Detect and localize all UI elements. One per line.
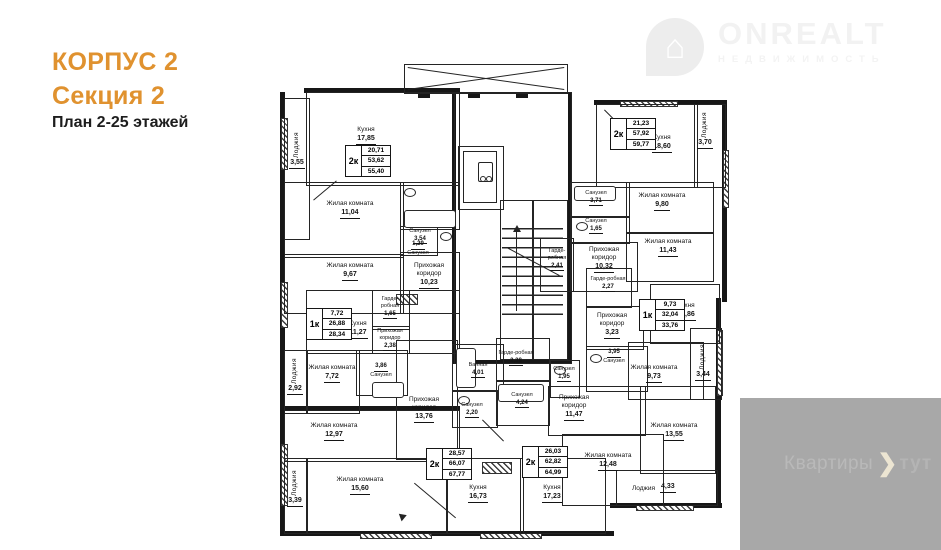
room-label: Жилая комната15,60 xyxy=(330,476,390,495)
room-label: Прихожая коридор10,23 xyxy=(404,262,454,289)
room-label: 3,86Санузел xyxy=(358,362,404,378)
building-title: КОРПУС 2 xyxy=(52,48,178,77)
area-living-total: 9,73 xyxy=(656,300,684,310)
room-label: Лоджия2,92 xyxy=(286,358,304,395)
room-label: Жилая комната9,73 xyxy=(626,364,682,383)
apartment-info-box: 1к 7,7226,8828,34 xyxy=(306,308,352,340)
apartment-type: 1к xyxy=(307,309,323,339)
room-label: Прихожая коридор11,47 xyxy=(550,394,598,421)
room-label: Кухня17,85 xyxy=(340,126,392,145)
area-total: 64,99 xyxy=(539,468,567,477)
brand-tagline: НЕДВИЖИМОСТЬ xyxy=(718,54,887,65)
area-living-total: 21,23 xyxy=(627,119,655,129)
plan-title: План 2-25 этажей xyxy=(52,114,188,132)
house-icon: ⌂ xyxy=(665,30,686,64)
area-base: 66,07 xyxy=(443,459,471,469)
kvartiry-tut-watermark: Квартиры ❯ тут xyxy=(784,452,932,476)
parapet xyxy=(404,64,568,94)
room-label: Лоджия3,55 xyxy=(288,132,306,169)
area-living-total: 28,57 xyxy=(443,449,471,459)
stair-arrow xyxy=(516,231,517,311)
bathtub-icon xyxy=(404,210,456,228)
room-label: Жилая комната12,97 xyxy=(304,422,364,441)
room-label: Жилая комната7,72 xyxy=(306,364,358,383)
photo-watermark-box: Квартиры ❯ тут xyxy=(740,398,941,550)
area-total: 55,40 xyxy=(362,167,390,176)
room-label: Санузел4,24 xyxy=(500,392,544,408)
section-title: Секция 2 xyxy=(52,82,165,111)
area-living-total: 7,72 xyxy=(323,309,351,319)
room-label: Санузел1,65 xyxy=(576,218,616,234)
room-living xyxy=(284,182,404,258)
stroller-wheel xyxy=(486,176,492,182)
area-base: 57,92 xyxy=(627,129,655,139)
room-label: Жилая комната11,43 xyxy=(640,238,696,257)
brand-pin-icon: ⌂ xyxy=(646,18,704,76)
apartment-type: 2к xyxy=(523,447,539,477)
room-label: 1,29Санузел xyxy=(400,240,436,256)
room-label: 3,95Санузел xyxy=(592,348,636,364)
apartment-info-box: 1к 9,7332,0433,76 xyxy=(639,299,685,331)
brand-name: ONREALT xyxy=(718,18,887,51)
room-label: Прихожая коридор10,32 xyxy=(578,246,630,273)
toilet-icon xyxy=(404,188,416,197)
apartment-type: 1к xyxy=(640,300,656,330)
watermark-text-left: Квартиры xyxy=(784,453,873,475)
apartment-type: 2к xyxy=(346,146,362,176)
room-label: Лоджия4,33 xyxy=(632,482,712,493)
apartment-info-box: 2к 21,2357,9259,77 xyxy=(610,118,656,150)
apartment-info-box: 2к 26,0362,8264,99 xyxy=(522,446,568,478)
stroller-icon xyxy=(478,162,493,182)
room-label: Лоджия3,70 xyxy=(696,112,714,149)
room-label: Кухня17,23 xyxy=(526,484,578,503)
area-base: 62,82 xyxy=(539,457,567,467)
room-label: Прихожая коридор3,23 xyxy=(588,312,636,339)
brand-watermark: ⌂ ONREALT НЕДВИЖИМОСТЬ xyxy=(646,18,887,76)
room-label: Жилая комната9,67 xyxy=(322,262,378,281)
room-label: Гарде-робная2,27 xyxy=(590,276,626,292)
room-label: Лоджия3,44 xyxy=(694,344,712,381)
stair-divider xyxy=(532,201,534,359)
room-label: Жилая комната9,80 xyxy=(634,192,690,211)
area-total: 67,77 xyxy=(443,470,471,479)
room-label: Гарде-робная2,38 xyxy=(498,350,534,366)
room-label: Прихожая коридор13,76 xyxy=(398,396,450,423)
stair-arrow-head xyxy=(513,225,521,232)
apartment-type: 2к xyxy=(427,449,443,479)
area-base: 53,62 xyxy=(362,156,390,166)
room-label: Жилая комната13,55 xyxy=(646,422,702,441)
apartment-info-box: 2к 28,5766,0767,77 xyxy=(426,448,472,480)
watermark-text-right: тут xyxy=(899,453,932,475)
area-base: 26,88 xyxy=(323,319,351,329)
area-total: 28,34 xyxy=(323,330,351,339)
apartment-type: 2к xyxy=(611,119,627,149)
area-total: 33,76 xyxy=(656,321,684,330)
room-label: Кухня16,73 xyxy=(452,484,504,503)
area-base: 32,04 xyxy=(656,310,684,320)
room-label: Жилая комната11,04 xyxy=(322,200,378,219)
room-label: Санузел3,71 xyxy=(574,190,618,206)
floor-plan-page: КОРПУС 2 Секция 2 План 2-25 этажей ⌂ ONR… xyxy=(0,0,941,550)
room-label: Гарде-робная1,65 xyxy=(374,296,406,319)
room-label: Жилая комната12,48 xyxy=(580,452,636,471)
room-label: Прихожая коридор2,38 xyxy=(370,328,410,351)
area-living-total: 20,71 xyxy=(362,146,390,156)
area-total: 59,77 xyxy=(627,140,655,149)
chevron-icon: ❯ xyxy=(877,452,897,476)
room-label: Санузел1,95 xyxy=(549,366,579,382)
room-label: Санузел2,20 xyxy=(452,402,492,418)
apartment-info-box: 2к 20,7153,6255,40 xyxy=(345,145,391,177)
room-label: Ванная4,01 xyxy=(458,362,498,378)
room-label: Лоджия3,39 xyxy=(286,470,304,507)
area-living-total: 26,03 xyxy=(539,447,567,457)
room-label: Гарде-робная2,41 xyxy=(542,248,572,271)
